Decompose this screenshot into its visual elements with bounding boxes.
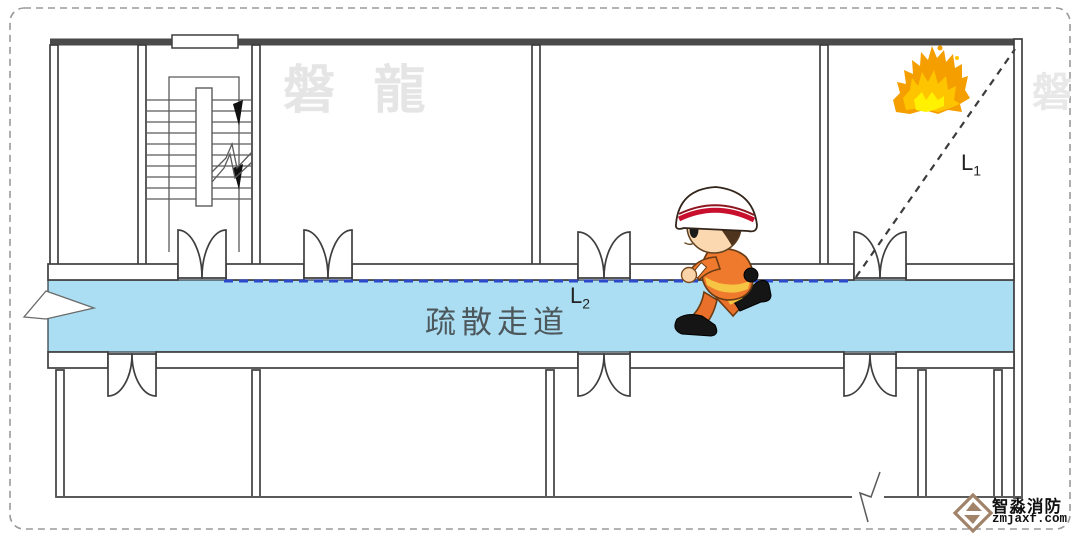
watermark-text: 磐 龍 bbox=[283, 48, 437, 123]
wall bbox=[1014, 39, 1022, 498]
door-symbol bbox=[604, 354, 630, 396]
l2-base: L bbox=[570, 283, 582, 308]
wall bbox=[630, 352, 844, 368]
fire-icon bbox=[893, 46, 970, 115]
wall bbox=[48, 352, 108, 368]
wall bbox=[252, 45, 260, 266]
watermark-side-fragment: 磐 bbox=[1032, 60, 1072, 118]
floor-plan-svg bbox=[0, 0, 1080, 537]
l2-label: L2 bbox=[570, 283, 590, 311]
door-symbol bbox=[870, 354, 896, 396]
corridor-label: 疏散走道 bbox=[425, 297, 569, 342]
stair-landing bbox=[196, 88, 212, 206]
wall bbox=[50, 45, 58, 266]
door-symbol bbox=[844, 354, 870, 396]
door-symbol bbox=[578, 232, 604, 278]
door-symbol bbox=[328, 230, 352, 278]
wall bbox=[896, 352, 1014, 368]
wall bbox=[352, 264, 578, 280]
wall bbox=[546, 370, 554, 497]
wall-break-symbol bbox=[860, 472, 880, 522]
wall bbox=[820, 45, 828, 266]
staircase-symbol bbox=[146, 77, 252, 252]
wall bbox=[532, 45, 540, 266]
bottom-room-walls bbox=[56, 370, 1002, 497]
wall bbox=[226, 264, 304, 280]
l1-sub: 1 bbox=[973, 162, 981, 178]
door-symbol bbox=[132, 354, 156, 396]
door-symbol bbox=[202, 230, 226, 278]
l1-base: L bbox=[961, 150, 973, 175]
wall bbox=[918, 370, 926, 497]
bottom-wall bbox=[56, 472, 1022, 522]
l2-sub: 2 bbox=[582, 295, 590, 311]
window-symbol bbox=[172, 35, 238, 48]
wall bbox=[156, 352, 578, 368]
l1-label: L1 bbox=[961, 150, 981, 178]
company-website: zmjaxf.com bbox=[992, 512, 1067, 526]
wall bbox=[994, 370, 1002, 497]
door-symbol bbox=[880, 232, 906, 278]
company-logo-icon bbox=[955, 495, 991, 531]
door-symbol bbox=[854, 232, 880, 278]
door-symbol bbox=[604, 232, 630, 278]
door-symbol bbox=[304, 230, 328, 278]
wall bbox=[906, 264, 1014, 280]
door-symbol bbox=[178, 230, 202, 278]
floor-plan-diagram: 磐 龍 磐 疏散走道 L2 L1 智淼消防 zmjaxf.com bbox=[0, 0, 1080, 537]
door-symbol bbox=[578, 354, 604, 396]
wall bbox=[48, 264, 178, 280]
wall bbox=[56, 370, 64, 497]
wall bbox=[138, 45, 146, 266]
door-symbol bbox=[108, 354, 132, 396]
wall bbox=[252, 370, 260, 497]
